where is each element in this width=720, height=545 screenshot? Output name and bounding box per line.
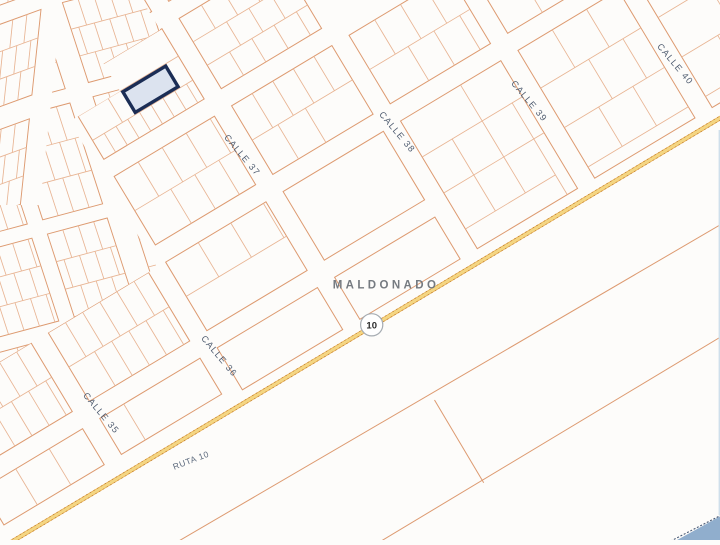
svg-text:MALDONADO: MALDONADO <box>333 280 440 292</box>
svg-text:10: 10 <box>366 321 377 332</box>
